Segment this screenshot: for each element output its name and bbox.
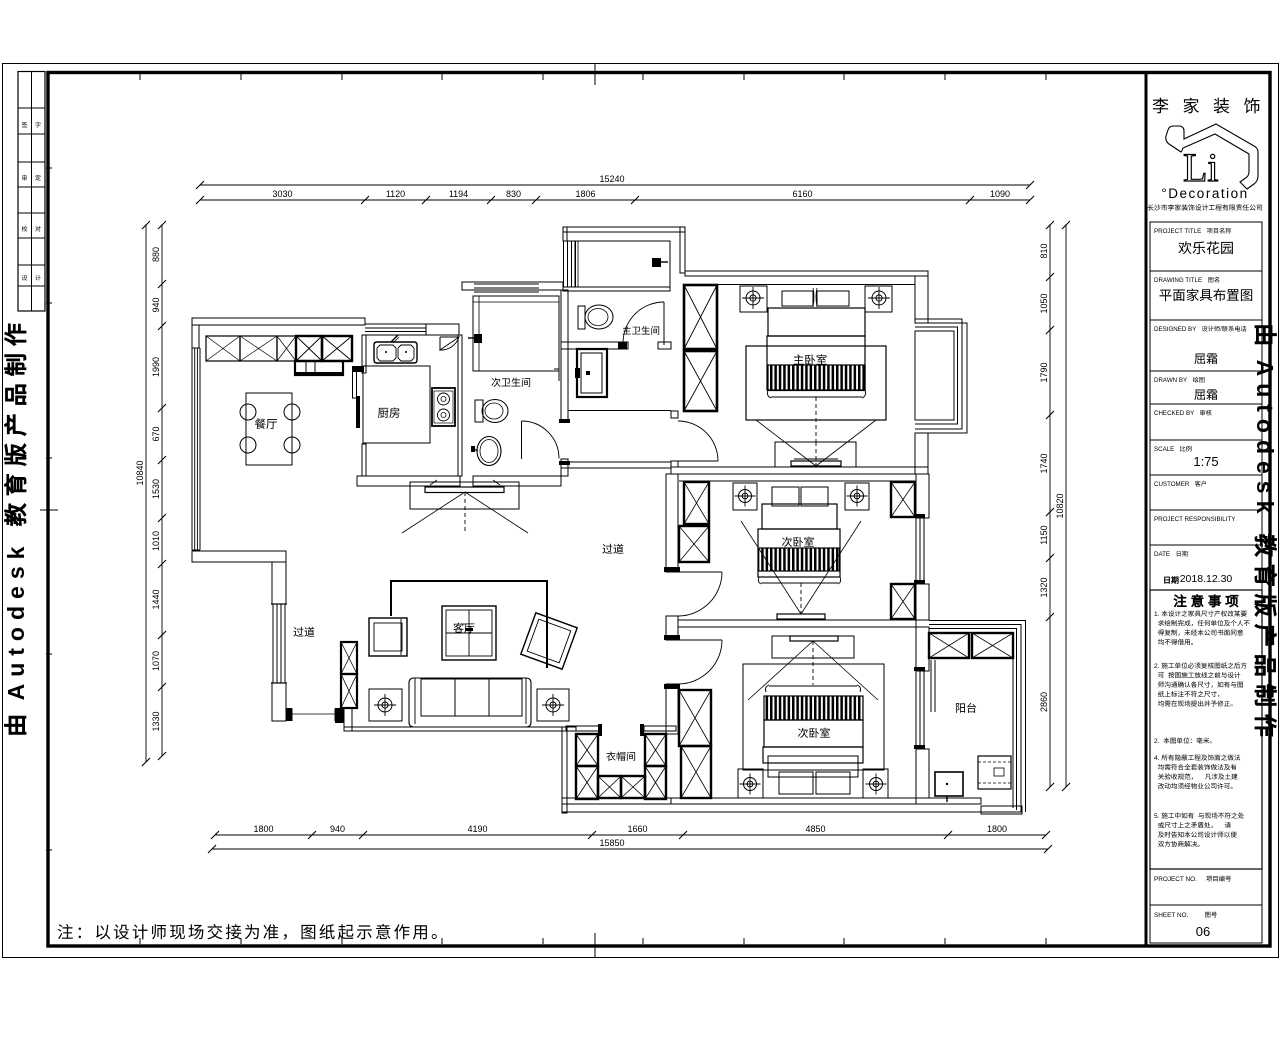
- svg-text:CHECKED BY: CHECKED BY: [1154, 410, 1194, 417]
- svg-text:1330: 1330: [151, 711, 161, 731]
- svg-text:Autodesk: Autodesk: [3, 540, 29, 701]
- svg-text:1.: 1.: [1154, 611, 1160, 618]
- svg-text:5.: 5.: [1154, 813, 1160, 820]
- svg-text:1800: 1800: [987, 824, 1007, 834]
- svg-text:PROJECT NO.: PROJECT NO.: [1154, 876, 1197, 883]
- svg-text:1150: 1150: [1039, 525, 1049, 544]
- svg-text:1194: 1194: [449, 189, 468, 199]
- svg-text:DATE: DATE: [1154, 551, 1170, 558]
- svg-text:°Decoration: °Decoration: [1161, 186, 1248, 201]
- svg-text:2018.12.30: 2018.12.30: [1180, 573, 1233, 585]
- svg-text:6160: 6160: [792, 189, 812, 199]
- svg-text:1010: 1010: [151, 531, 161, 551]
- svg-text:SCALE: SCALE: [1154, 446, 1174, 453]
- svg-text:1790: 1790: [1039, 362, 1049, 382]
- svg-text:1090: 1090: [990, 189, 1010, 199]
- svg-text:1530: 1530: [151, 479, 161, 499]
- svg-text:1806: 1806: [575, 189, 595, 199]
- svg-text:1440: 1440: [151, 589, 161, 609]
- svg-text:1120: 1120: [386, 189, 405, 199]
- svg-text:PROJECT TITLE: PROJECT TITLE: [1154, 228, 1201, 235]
- svg-text:10840: 10840: [135, 460, 145, 485]
- svg-text:4850: 4850: [805, 824, 825, 834]
- svg-text:2860: 2860: [1039, 692, 1049, 712]
- svg-text:06: 06: [1196, 924, 1210, 939]
- svg-text:1740: 1740: [1039, 453, 1049, 473]
- svg-text:4190: 4190: [467, 824, 487, 834]
- svg-text:DRAWN BY: DRAWN BY: [1154, 377, 1187, 384]
- svg-text:/: /: [1220, 326, 1222, 333]
- svg-text:4.: 4.: [1154, 755, 1160, 762]
- svg-text:1800: 1800: [253, 824, 273, 834]
- svg-text:1660: 1660: [627, 824, 647, 834]
- svg-text:1070: 1070: [151, 651, 161, 671]
- svg-text:Li: Li: [1183, 145, 1219, 190]
- svg-text:3030: 3030: [272, 189, 292, 199]
- svg-text:830: 830: [506, 189, 521, 199]
- svg-text:SHEET NO.: SHEET NO.: [1154, 912, 1189, 919]
- svg-text:940: 940: [330, 824, 345, 834]
- svg-text:15240: 15240: [599, 174, 624, 184]
- svg-text:PROJECT RESPONSIBILITY: PROJECT RESPONSIBILITY: [1154, 516, 1235, 523]
- svg-text:2.: 2.: [1154, 738, 1160, 745]
- svg-text:2.: 2.: [1154, 663, 1160, 670]
- svg-text:940: 940: [151, 297, 161, 312]
- svg-text:DRAWING TITLE: DRAWING TITLE: [1154, 277, 1202, 284]
- svg-text:10820: 10820: [1055, 493, 1065, 518]
- svg-text:DESIGNED BY: DESIGNED BY: [1154, 326, 1196, 333]
- svg-text:1050: 1050: [1039, 293, 1049, 313]
- svg-text:1990: 1990: [151, 357, 161, 377]
- svg-text:880: 880: [151, 247, 161, 262]
- svg-text:1:75: 1:75: [1193, 454, 1218, 469]
- svg-text:670: 670: [151, 426, 161, 441]
- svg-text:1320: 1320: [1039, 577, 1049, 597]
- svg-text:810: 810: [1039, 243, 1049, 258]
- svg-text:CUSTOMER: CUSTOMER: [1154, 481, 1190, 488]
- svg-text:15850: 15850: [599, 838, 624, 848]
